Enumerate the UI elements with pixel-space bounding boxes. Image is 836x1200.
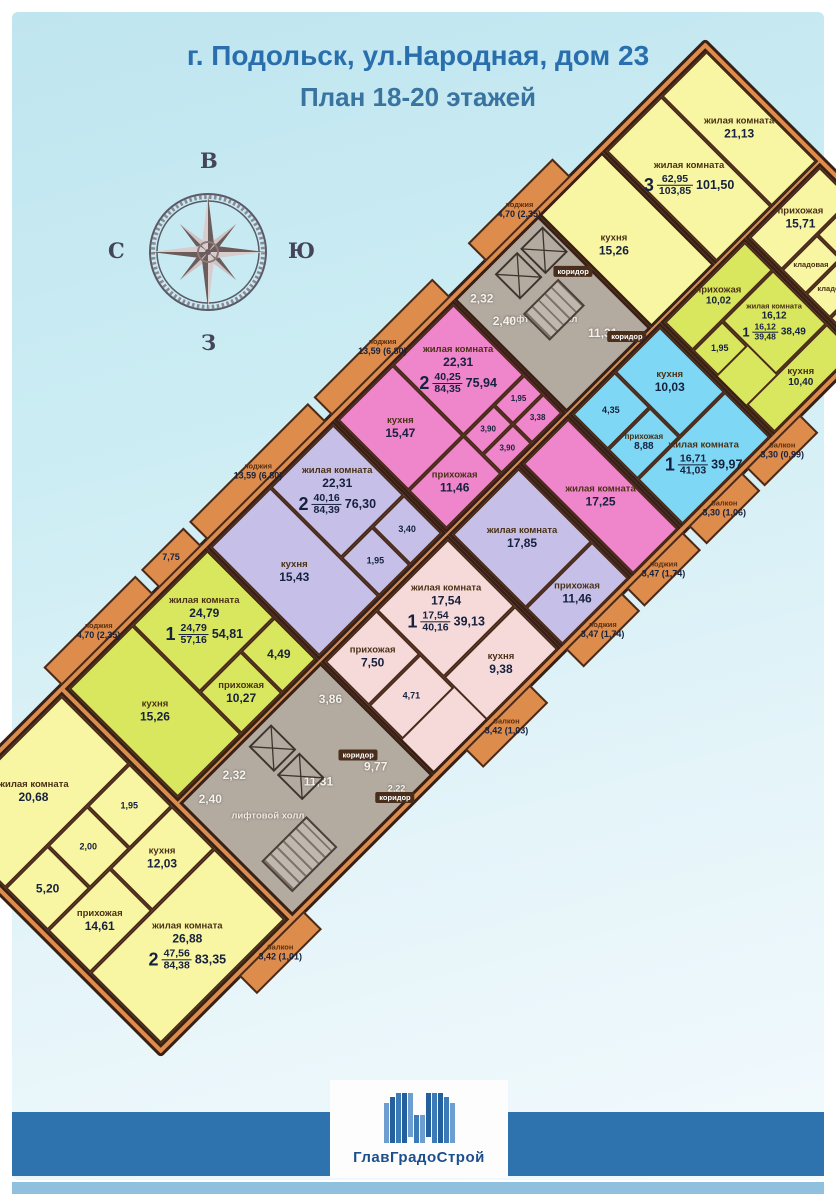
area-fraction: 47,5684,38	[162, 948, 192, 971]
corridor-label: коридор	[338, 750, 377, 761]
room-area: 17,85	[507, 537, 537, 550]
room-area: 9,77	[364, 761, 387, 774]
room-name: прихожая	[624, 433, 663, 441]
room-name: жилая комната	[654, 161, 724, 171]
room-area: 15,43	[280, 571, 310, 584]
room-name: жилая комната	[169, 596, 239, 606]
room-area: 4,35	[602, 406, 620, 415]
apartment-summary: 2 40,1684,39 76,30	[298, 493, 376, 516]
area-fraction: 16,1239,48	[753, 323, 778, 342]
room-area: 4,70 (2,35)	[77, 630, 121, 639]
rooms-count: 1	[165, 625, 175, 644]
area-fraction: 40,2584,35	[433, 372, 463, 395]
room-area: 3,30 (1,06)	[703, 508, 747, 517]
room-name: жилая комната	[669, 440, 739, 450]
room-name: кухня	[142, 700, 169, 710]
room-area: 8,88	[634, 443, 653, 454]
net-area: 83,35	[195, 953, 226, 966]
room-name: лоджия	[84, 622, 112, 630]
net-area: 39,97	[711, 458, 742, 471]
floor-plan-poster: г. Подольск, ул.Народная, дом 23 План 18…	[0, 0, 836, 1200]
total-area: 84,38	[162, 960, 192, 971]
room-area: 2,40	[199, 793, 222, 806]
room-area: 3,90	[480, 426, 496, 434]
compass-label-left: С	[108, 238, 125, 263]
room-name: кухня	[387, 416, 414, 426]
rooms-count: 2	[298, 495, 308, 514]
total-area: 103,85	[657, 186, 693, 197]
room-name: кладовая	[794, 261, 829, 269]
room-area: 3,30 (0,99)	[761, 450, 805, 459]
total-area: 39,48	[753, 333, 778, 342]
rooms-count: 1	[665, 455, 675, 474]
room-name: балкон	[769, 441, 795, 449]
room-area: 1,95	[511, 395, 527, 403]
net-area: 76,30	[345, 498, 376, 511]
room-area: 22,31	[443, 356, 473, 369]
apartment-summary: 3 62,95103,85 101,50	[644, 174, 734, 197]
living-area: 40,25	[433, 372, 463, 384]
living-area: 24,79	[178, 623, 208, 635]
area-fraction: 16,7141,03	[678, 453, 708, 476]
room-name: лоджия	[649, 560, 677, 568]
room-area: 15,71	[786, 218, 816, 231]
rooms-count: 3	[644, 176, 654, 195]
rooms-count: 2	[149, 950, 159, 969]
room-area: 24,79	[189, 607, 219, 620]
apartment-summary: 1 17,5440,16 39,13	[407, 610, 485, 633]
room-area: 5,20	[36, 882, 59, 895]
room-area: 12,03	[147, 858, 177, 871]
living-area: 17,54	[420, 610, 450, 622]
room-name: балкон	[711, 499, 737, 507]
room-area: 11,46	[440, 481, 469, 494]
room-area: 10,40	[788, 379, 813, 390]
room-name: лифтовой холл	[231, 811, 304, 821]
room-name: прихожая	[696, 286, 742, 296]
room-area: 20,68	[18, 791, 48, 804]
room-name: кухня	[787, 368, 814, 378]
room-area: 10,02	[706, 297, 731, 308]
room-name: жилая комната	[704, 117, 774, 127]
compass-label-bottom: З	[201, 330, 216, 355]
room-area: 3,47 (1,74)	[642, 569, 686, 578]
room-area: 2,32	[470, 293, 493, 306]
room-name: жилая комната	[411, 583, 481, 593]
room-area: 10,03	[655, 381, 685, 394]
apartment-summary: 1 16,7141,03 39,97	[665, 453, 743, 476]
room-area: 3,40	[398, 525, 416, 534]
net-area: 38,49	[781, 327, 806, 338]
room-name: прихожая	[350, 646, 396, 656]
room-area: 3,38	[530, 414, 546, 422]
room-name: лоджия	[505, 201, 533, 209]
rooms-count: 1	[743, 326, 750, 340]
corridor-label: коридор	[553, 266, 592, 277]
room-area: 4,71	[403, 692, 421, 701]
room-area: 2,00	[80, 842, 98, 851]
room-name: жилая комната	[0, 780, 69, 790]
room-area: 3,47 (1,74)	[581, 630, 625, 639]
area-fraction: 40,1684,39	[311, 493, 341, 516]
apartment-summary: 1 16,1239,48 38,49	[743, 323, 807, 342]
rooms-count: 2	[420, 374, 430, 393]
room-area: 2,32	[223, 769, 246, 782]
room-name: жилая комната	[565, 485, 635, 495]
total-area: 40,16	[420, 622, 450, 633]
area-fraction: 17,5440,16	[420, 610, 450, 633]
room-area: 13,59 (6,80)	[358, 347, 407, 356]
room-name: кухня	[149, 847, 176, 857]
room-area: 17,25	[586, 496, 616, 509]
room-name: жилая комната	[152, 921, 222, 931]
footer-band-light	[12, 1182, 824, 1194]
room-area: 26,88	[173, 932, 203, 945]
room-area: 9,38	[489, 662, 512, 675]
room-area: 16,12	[762, 312, 787, 323]
room-area: 3,86	[319, 693, 342, 706]
net-area: 101,50	[696, 179, 734, 192]
room-area: 11,46	[563, 592, 592, 605]
room-name: лоджия	[368, 338, 396, 346]
logo-building-icon	[382, 1093, 456, 1143]
room-name: кухня	[601, 233, 628, 243]
room-area: 1,95	[367, 557, 385, 566]
room-area: 3,42 (1,03)	[485, 726, 529, 735]
company-logo: ГлавГрадоСтрой	[330, 1080, 508, 1178]
room-area: 14,61	[85, 920, 115, 933]
corridor-label: коридор	[375, 792, 414, 803]
net-area: 75,94	[466, 377, 497, 390]
room-area: 3,90	[499, 445, 515, 453]
room-name: прихожая	[432, 470, 478, 480]
room-name: жилая комната	[423, 345, 493, 355]
room-name: кухня	[488, 651, 515, 661]
room-area: 17,54	[431, 594, 461, 607]
room-area: 2,40	[493, 315, 516, 328]
room-name: кладовая	[818, 285, 836, 293]
room-name: кухня	[281, 560, 308, 570]
room-area: 15,26	[599, 244, 629, 257]
room-area: 21,13	[724, 128, 754, 141]
apartment-summary: 2 40,2584,35 75,94	[420, 372, 498, 395]
room-name: кухня	[657, 370, 684, 380]
living-area: 47,56	[162, 948, 192, 960]
room-name: жилая комната	[487, 526, 557, 536]
compass-icon	[128, 172, 288, 332]
room-area: 15,47	[385, 427, 415, 440]
room-area: 22,31	[322, 477, 352, 490]
room-area: 7,50	[361, 657, 384, 670]
total-area: 84,35	[433, 384, 463, 395]
company-name: ГлавГрадоСтрой	[353, 1149, 485, 1166]
room-area: 4,70 (2,35)	[498, 210, 542, 219]
room-area: 1,95	[121, 801, 139, 810]
compass-rose: В Ю З С	[128, 172, 288, 332]
total-area: 41,03	[678, 465, 708, 476]
area-fraction: 62,95103,85	[657, 174, 693, 197]
apartment-summary: 2 47,5684,38 83,35	[149, 948, 227, 971]
rooms-count: 1	[407, 612, 417, 631]
room-name: лоджия	[244, 462, 272, 470]
room-area: 4,49	[267, 648, 290, 661]
room-name: балкон	[267, 943, 293, 951]
compass-label-top: В	[200, 148, 218, 173]
area-fraction: 24,7957,16	[178, 623, 208, 646]
room-name: жилая комната	[747, 303, 803, 311]
staircase-icon	[261, 816, 337, 892]
staircase-icon	[523, 279, 585, 341]
room-name: прихожая	[778, 207, 824, 217]
room-area: 10,27	[226, 692, 256, 705]
room-name: жилая комната	[302, 466, 372, 476]
total-area: 57,16	[178, 635, 208, 646]
total-area: 84,39	[311, 505, 341, 516]
room-area: 1,95	[711, 344, 729, 353]
room-area: 7,75	[163, 553, 181, 562]
room-area: 15,26	[140, 711, 170, 724]
room-name: прихожая	[218, 681, 264, 691]
room-area: 3,42 (1,01)	[258, 952, 302, 961]
compass-label-right: Ю	[288, 238, 315, 263]
room-name: прихожая	[77, 909, 123, 919]
net-area: 54,81	[211, 628, 242, 641]
room-name: лоджия	[589, 621, 617, 629]
apartment-summary: 1 24,7957,16 54,81	[165, 623, 243, 646]
room-area: 13,59 (6,80)	[233, 471, 282, 480]
room-name: прихожая	[554, 581, 600, 591]
net-area: 39,13	[453, 615, 484, 628]
room-name: балкон	[493, 717, 519, 725]
